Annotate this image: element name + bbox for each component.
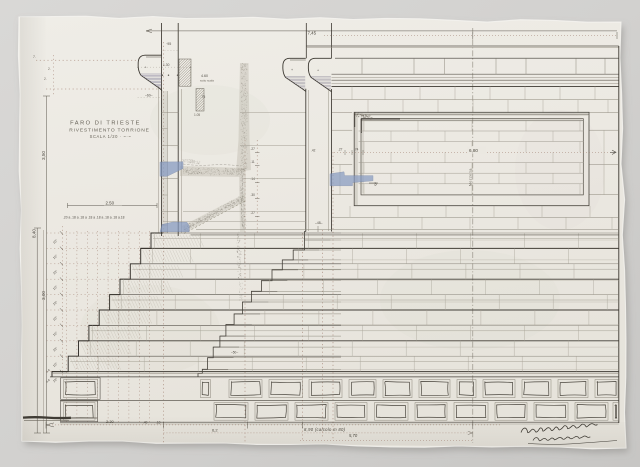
svg-text:‒48‒: ‒48‒ bbox=[315, 221, 323, 225]
svg-text:SCALA 1/20 · ~·~: SCALA 1/20 · ~·~ bbox=[90, 134, 132, 139]
svg-text:4.60: 4.60 bbox=[201, 74, 208, 78]
svg-text:2.: 2. bbox=[44, 77, 47, 81]
svg-text:.20 a .18 a .18 a .18 a .18 a: .20 a .18 a .18 a .18 a .18 a .18 a .18 … bbox=[63, 215, 125, 219]
svg-text:2.30: 2.30 bbox=[106, 419, 115, 424]
svg-text:.27: .27 bbox=[251, 147, 256, 151]
svg-text:.27: .27 bbox=[338, 148, 343, 152]
svg-text:6,2: 6,2 bbox=[212, 427, 218, 432]
svg-text:+: + bbox=[137, 66, 139, 70]
svg-text:.75: .75 bbox=[201, 95, 206, 99]
svg-text:3,50: 3,50 bbox=[41, 151, 46, 160]
svg-text:5,70: 5,70 bbox=[349, 433, 358, 438]
svg-text:‒60‒: ‒60‒ bbox=[145, 94, 153, 98]
svg-text:8,90 (calcolo m 80): 8,90 (calcolo m 80) bbox=[304, 427, 346, 432]
svg-text:·95: ·95 bbox=[166, 42, 171, 46]
svg-text:3: 3 bbox=[374, 182, 377, 188]
svg-text:8,40: 8,40 bbox=[32, 229, 37, 238]
svg-text:1.30: 1.30 bbox=[163, 63, 170, 67]
svg-text:sotto scala: sotto scala bbox=[200, 78, 214, 82]
svg-text:7,45: 7,45 bbox=[308, 31, 317, 36]
svg-text:RIVESTIMENTO TORRIONE: RIVESTIMENTO TORRIONE bbox=[69, 127, 149, 133]
svg-text:.14: .14 bbox=[251, 177, 256, 181]
svg-text:Mezzeria: Mezzeria bbox=[468, 168, 472, 186]
svg-text:+: + bbox=[317, 68, 319, 72]
svg-text:.11: .11 bbox=[251, 160, 255, 164]
svg-text:2.: 2. bbox=[48, 67, 51, 71]
svg-text:+: + bbox=[291, 68, 293, 72]
svg-text:1.05: 1.05 bbox=[194, 113, 200, 117]
svg-text:.74: .74 bbox=[354, 148, 359, 152]
svg-text:.30: .30 bbox=[251, 193, 256, 197]
svg-text:6,80: 6,80 bbox=[469, 148, 478, 153]
svg-text:‒50‒: ‒50‒ bbox=[231, 351, 238, 355]
svg-text:FARO DI TRIESTE: FARO DI TRIESTE bbox=[70, 120, 141, 126]
svg-text:.42: .42 bbox=[311, 148, 316, 152]
svg-text:7.: 7. bbox=[33, 55, 36, 59]
svg-text:2.50: 2.50 bbox=[106, 201, 115, 206]
svg-text:3,00: 3,00 bbox=[41, 291, 46, 300]
svg-text:+: + bbox=[145, 66, 147, 70]
svg-text:.40: .40 bbox=[143, 421, 148, 425]
svg-text:.18: .18 bbox=[156, 421, 161, 425]
